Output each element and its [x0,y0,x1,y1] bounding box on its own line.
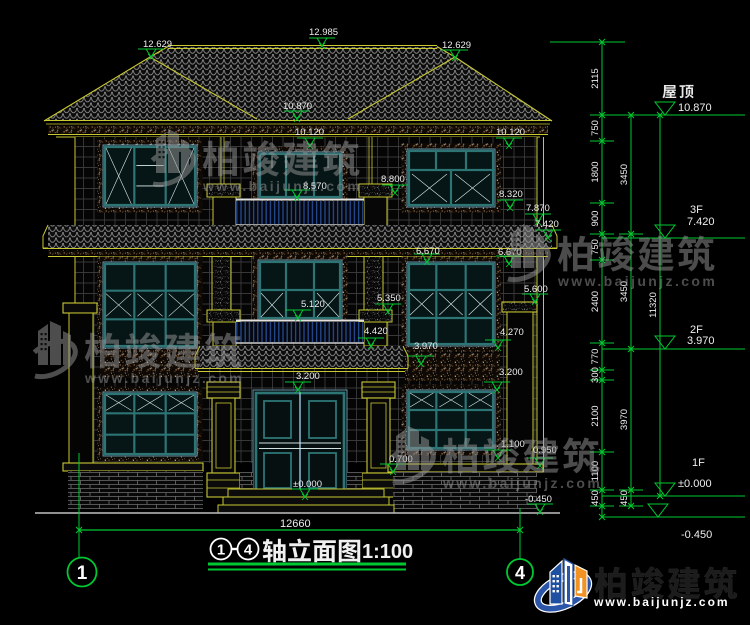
svg-text:4: 4 [244,542,253,559]
svg-text:8.800: 8.800 [381,174,405,185]
svg-text:10.120: 10.120 [295,127,324,138]
svg-text:2400: 2400 [590,291,601,312]
svg-text:www.baijunjz.com: www.baijunjz.com [202,178,362,194]
svg-text:-0.450: -0.450 [681,529,712,541]
svg-text:5.600: 5.600 [524,284,548,295]
svg-text:±0.000: ±0.000 [293,479,322,490]
svg-text:www.baijunjz.com: www.baijunjz.com [593,595,730,609]
svg-text:www.baijunjz.com: www.baijunjz.com [557,273,717,289]
svg-text:4: 4 [515,563,525,583]
svg-text:3970: 3970 [619,409,630,430]
svg-text:1: 1 [77,563,88,584]
svg-text:3F: 3F [690,204,703,216]
svg-text:900: 900 [590,211,601,227]
svg-text:12.629: 12.629 [143,39,172,50]
svg-text:1800: 1800 [590,161,601,182]
svg-text:5.350: 5.350 [377,293,401,304]
svg-text:4.420: 4.420 [364,326,388,337]
svg-text:5.120: 5.120 [301,299,325,310]
svg-text:770: 770 [590,349,601,365]
svg-text:1F: 1F [692,457,705,469]
svg-text:www.baijunjz.com: www.baijunjz.com [442,475,602,491]
svg-text:-0.450: -0.450 [525,494,552,505]
svg-text:12.985: 12.985 [309,27,338,38]
svg-text:www.baijunjz.com: www.baijunjz.com [84,370,244,386]
svg-text:7.870: 7.870 [526,203,550,214]
svg-text:10.870: 10.870 [678,102,712,114]
svg-text:10.870: 10.870 [283,101,312,112]
svg-text:6.670: 6.670 [416,246,440,257]
svg-text:10.120: 10.120 [496,127,525,138]
svg-text:1:100: 1:100 [362,541,413,563]
svg-text:2115: 2115 [590,68,601,88]
svg-text:300: 300 [590,367,601,383]
svg-text:11320: 11320 [648,292,659,318]
svg-text:2100: 2100 [590,405,601,426]
svg-text:12660: 12660 [280,518,311,530]
svg-text:3450: 3450 [619,164,630,185]
svg-text:3.200: 3.200 [296,371,320,382]
svg-text:3.200: 3.200 [499,367,523,378]
svg-text:3.970: 3.970 [687,335,715,347]
svg-text:7.420: 7.420 [535,219,559,230]
svg-text:7.420: 7.420 [687,216,715,228]
svg-text:450: 450 [590,490,601,506]
svg-text:12.629: 12.629 [442,40,471,51]
svg-text:4.270: 4.270 [500,327,524,338]
svg-text:450: 450 [619,490,630,506]
svg-text:1: 1 [217,542,225,559]
svg-text:750: 750 [590,120,601,136]
svg-text:8.320: 8.320 [499,189,523,200]
svg-text:3.970: 3.970 [414,341,438,352]
svg-text:±0.000: ±0.000 [678,478,712,490]
